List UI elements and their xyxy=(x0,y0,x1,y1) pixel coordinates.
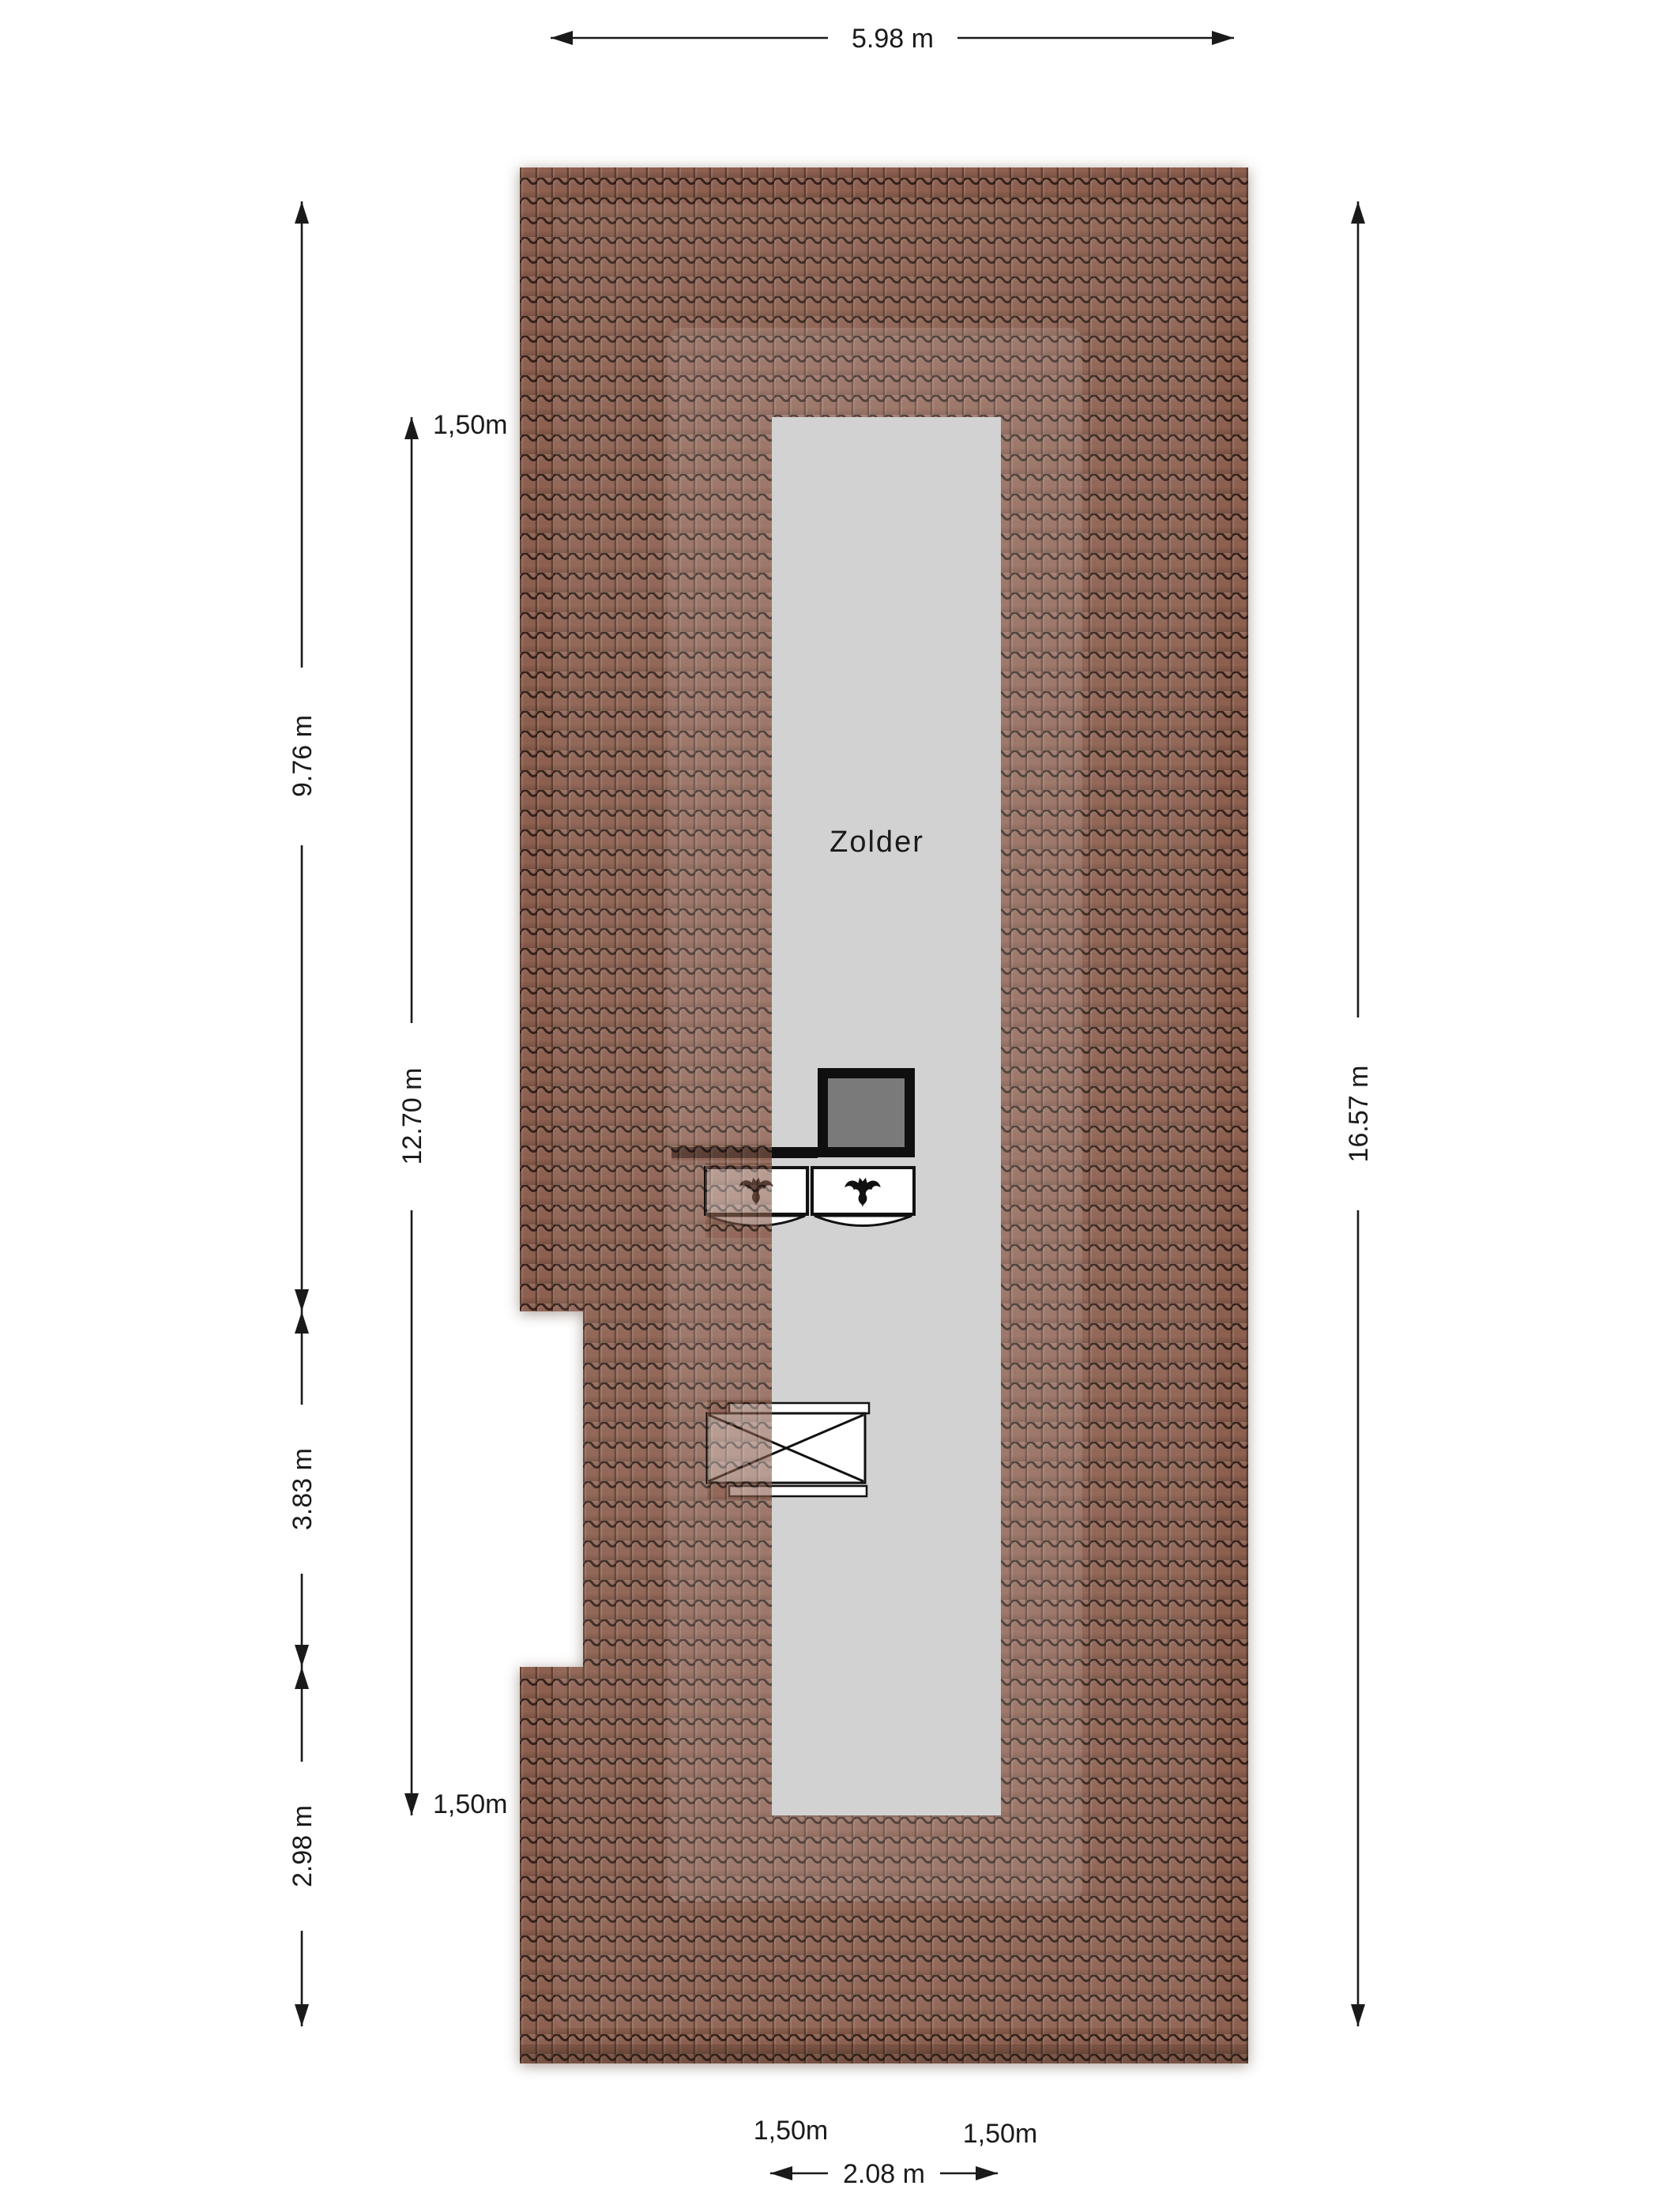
arrow-down-icon xyxy=(295,2004,309,2026)
dimension-bottom-width: 2.08 m 1,50m 1,50m xyxy=(754,2116,1038,2189)
dim-left-lower-label: 2.98 m xyxy=(288,1805,318,1887)
dimension-top-width: 5.98 m xyxy=(551,24,1234,54)
headroom-bottom-left-label: 1,50m xyxy=(754,2116,829,2146)
roof-window-right xyxy=(812,1168,914,1226)
dim-interior-length-label: 12.70 m xyxy=(397,1068,427,1165)
arrow-up-icon xyxy=(1351,201,1365,224)
arrow-left-icon xyxy=(551,31,573,45)
headroom-bottom-right-label: 1,50m xyxy=(963,2119,1038,2149)
dim-right-height-label: 16.57 m xyxy=(1344,1066,1374,1163)
arrow-right-icon xyxy=(976,2166,998,2180)
headroom-bottom-label: 1,50m xyxy=(433,1789,508,1819)
arrow-down-icon xyxy=(295,1645,309,1667)
arrow-down-icon xyxy=(404,1793,419,1815)
room-label: Zolder xyxy=(829,826,924,859)
arrow-up-icon xyxy=(295,1667,309,1689)
dimension-interior-length: 12.70 m 1,50m 1,50m xyxy=(397,410,508,1819)
dimension-right-height: 16.57 m xyxy=(1344,201,1374,2026)
chimney-flue xyxy=(828,1078,905,1147)
dim-bottom-width-label: 2.08 m xyxy=(843,2159,925,2189)
arrow-up-icon xyxy=(295,201,309,224)
arrow-up-icon xyxy=(404,417,419,439)
headroom-top-label: 1,50m xyxy=(433,410,508,440)
dimension-left-chain: 9.76 m 3.83 m 2.98 m xyxy=(288,201,318,2026)
floorplan-svg: Zolder 5.98 m xyxy=(0,0,1659,2212)
arrow-left-icon xyxy=(770,2166,792,2180)
dim-top-width-label: 5.98 m xyxy=(852,24,934,54)
arrow-down-icon xyxy=(295,1289,309,1311)
arrow-up-icon xyxy=(295,1311,309,1334)
floorplan-canvas: Zolder 5.98 m xyxy=(0,0,1659,2212)
roof-eave-shadow xyxy=(520,2045,1248,2063)
dim-left-upper-label: 9.76 m xyxy=(288,715,318,797)
arrow-right-icon xyxy=(1212,31,1234,45)
arrow-down-icon xyxy=(1351,2004,1365,2026)
dim-left-middle-label: 3.83 m xyxy=(288,1448,318,1530)
